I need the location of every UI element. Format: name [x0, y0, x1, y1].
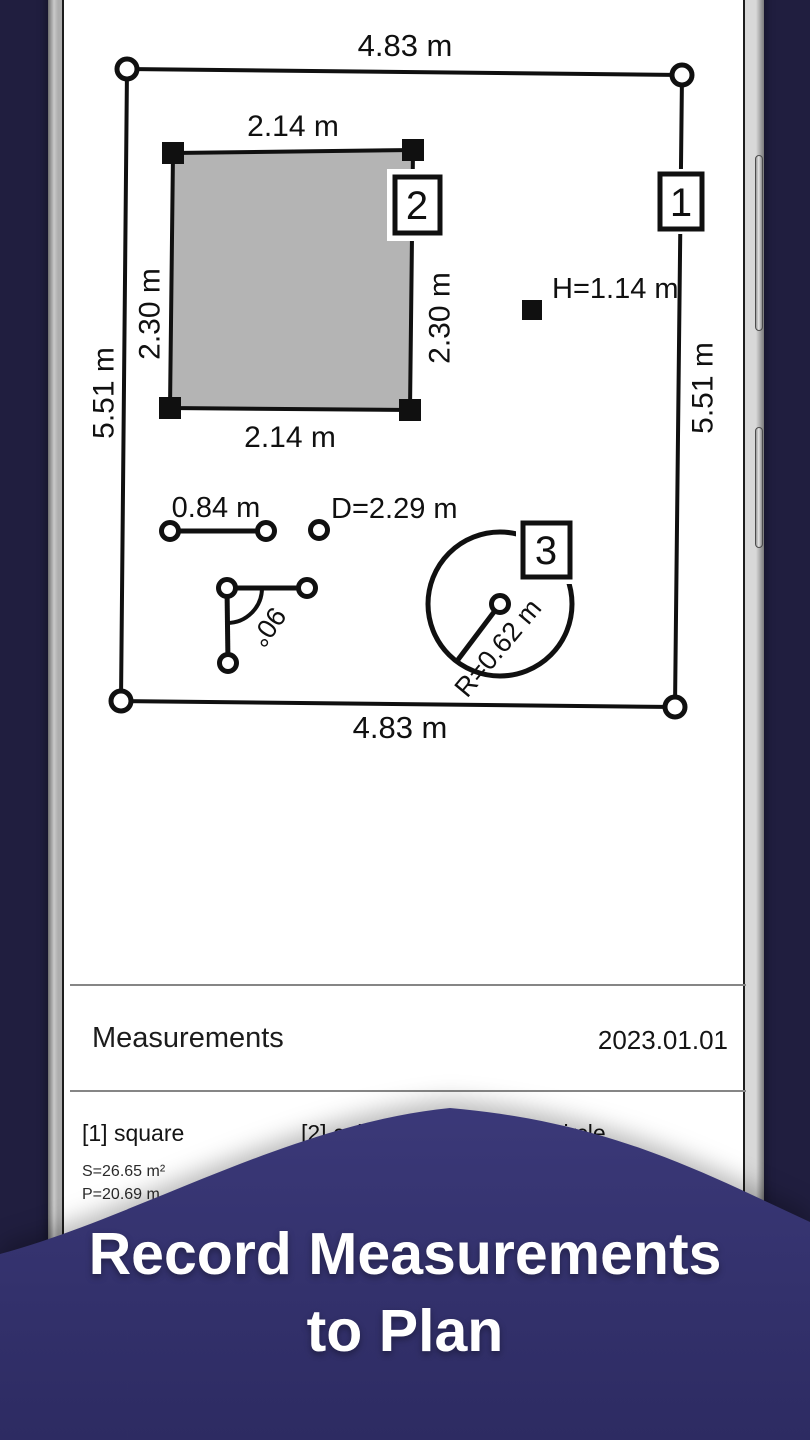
- promo-headline: Record Measurements to Plan: [0, 1216, 810, 1370]
- promo-headline-line2: to Plan: [0, 1293, 810, 1370]
- promo-headline-line1: Record Measurements: [0, 1216, 810, 1293]
